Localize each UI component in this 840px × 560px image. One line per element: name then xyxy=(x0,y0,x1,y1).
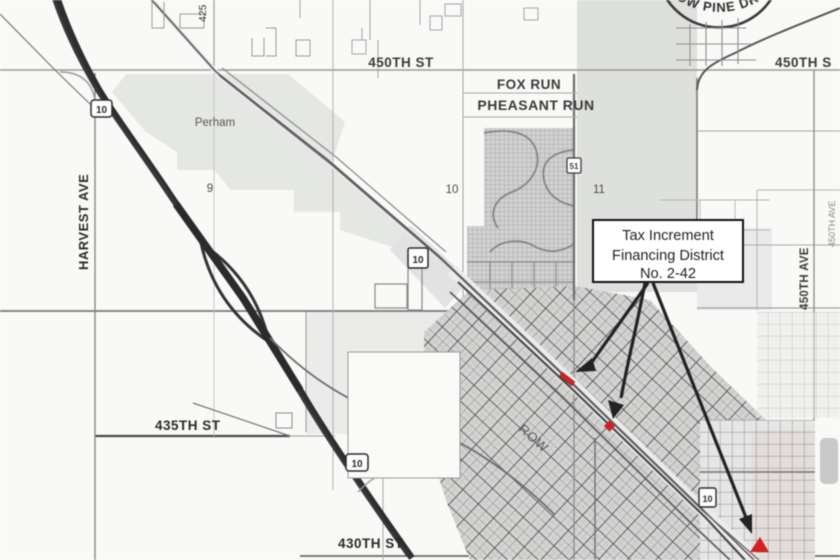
svg-text:450TH AVE: 450TH AVE xyxy=(827,201,837,247)
svg-text:425: 425 xyxy=(197,4,209,22)
svg-text:51: 51 xyxy=(570,162,579,171)
svg-text:450TH ST: 450TH ST xyxy=(368,55,434,70)
svg-text:450TH AVE: 450TH AVE xyxy=(799,247,811,310)
svg-text:10: 10 xyxy=(412,255,424,266)
svg-text:10: 10 xyxy=(702,494,712,504)
svg-text:FOX RUN: FOX RUN xyxy=(497,77,561,92)
svg-text:9: 9 xyxy=(207,183,213,195)
svg-text:11: 11 xyxy=(593,184,605,196)
svg-text:HARVEST AVE: HARVEST AVE xyxy=(76,174,91,270)
svg-text:PHEASANT RUN: PHEASANT RUN xyxy=(477,97,594,113)
svg-text:430TH ST: 430TH ST xyxy=(338,536,404,551)
svg-text:Perham: Perham xyxy=(195,117,235,129)
svg-text:450TH S: 450TH S xyxy=(775,55,832,70)
svg-text:Tax Increment: Tax Increment xyxy=(622,228,714,244)
svg-text:Financing District: Financing District xyxy=(612,248,724,264)
svg-text:10: 10 xyxy=(351,459,363,470)
svg-text:No. 2-42: No. 2-42 xyxy=(640,266,696,282)
svg-text:10: 10 xyxy=(446,184,459,196)
svg-text:10: 10 xyxy=(96,105,108,116)
svg-text:435TH ST: 435TH ST xyxy=(155,418,221,433)
